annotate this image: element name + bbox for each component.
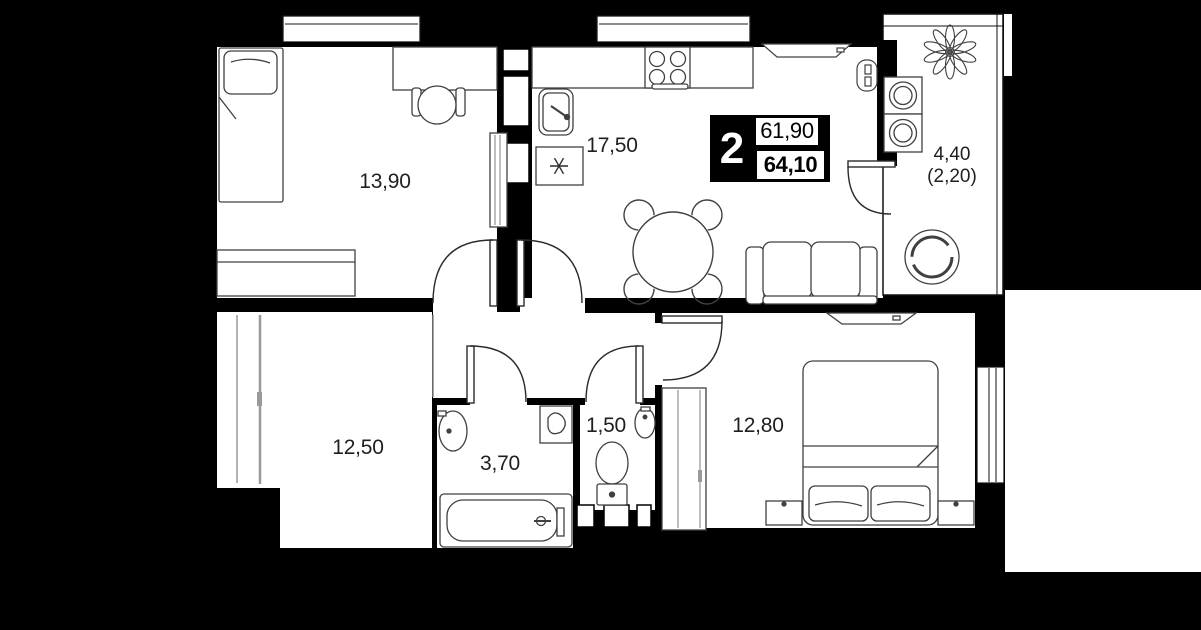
floor-plan-drawing xyxy=(0,0,1201,630)
room-count: 2 xyxy=(710,115,754,182)
mid-wall-left xyxy=(217,298,433,312)
wardrobe-handle xyxy=(257,392,262,406)
label-bedroom-1-area: 13,90 xyxy=(359,170,411,194)
wc-sink-drain xyxy=(643,415,647,419)
bedroom-2-door-leaf xyxy=(662,316,722,323)
balcony-area-value: 4,40 xyxy=(927,144,977,166)
bedroom-2-door-opening xyxy=(655,322,662,385)
wardrobe-handle xyxy=(698,470,702,482)
boiler-slot xyxy=(865,77,871,86)
wc-sink-tap xyxy=(641,407,650,411)
sink-drain xyxy=(447,429,451,433)
sofa-armrest-left xyxy=(746,247,764,304)
toilet-button xyxy=(610,492,615,497)
kitchen-counter xyxy=(532,47,753,88)
balcony-area-secondary: (2,20) xyxy=(927,166,977,188)
burner xyxy=(650,52,665,67)
label-bedroom-2-area: 12,80 xyxy=(732,414,784,438)
label-room-2-area: 12,50 xyxy=(332,436,384,460)
label-wc-area: 1,50 xyxy=(586,414,626,438)
bedroom-2-window xyxy=(977,367,1004,483)
shelf-item xyxy=(548,413,565,434)
label-kitchen-area: 17,50 xyxy=(586,134,638,158)
floor-plan: 13,90 17,50 4,40 (2,20) 12,50 3,70 1,50 … xyxy=(0,0,1201,630)
wc-sink xyxy=(635,408,655,438)
kitchen-door-leaf xyxy=(517,240,524,306)
bedroom-2-door-stub xyxy=(655,305,662,323)
neighbor-slab xyxy=(1005,290,1201,572)
room-2-floor-lower xyxy=(280,488,432,548)
desk xyxy=(393,47,497,90)
washing-machines xyxy=(884,77,922,152)
wc-door-leaf xyxy=(636,346,643,403)
mid-wall-right xyxy=(585,298,662,313)
nightstand-knob xyxy=(954,502,958,506)
bedroom-1-window-bay xyxy=(283,16,420,42)
wardrobe-bedroom-1 xyxy=(490,133,507,227)
bedroom-tv-icon xyxy=(827,313,916,324)
stove-handle xyxy=(652,84,688,89)
desk-chair-armrest-right xyxy=(456,88,465,116)
dresser xyxy=(217,250,355,296)
dining-table xyxy=(633,212,713,292)
total-area-value: 64,10 xyxy=(754,148,827,182)
bedroom-1-door-leaf xyxy=(490,240,497,306)
wc-door-slot xyxy=(585,398,640,406)
bathtub-rail xyxy=(557,508,564,536)
living-area-value: 61,90 xyxy=(754,116,820,147)
desk-chair xyxy=(418,86,456,124)
sofa-seat xyxy=(763,242,812,298)
neighbor-balcony-edge xyxy=(1004,14,1012,76)
burner xyxy=(671,52,686,67)
sofa-back xyxy=(763,296,877,304)
label-bathroom-area: 3,70 xyxy=(480,452,520,476)
balcony-door-leaf xyxy=(848,161,895,167)
sofa-seat xyxy=(811,242,860,298)
pillow xyxy=(871,486,930,521)
burner xyxy=(650,70,665,85)
bathroom-door-slot xyxy=(470,398,527,406)
pillow xyxy=(809,486,868,521)
toilet-bowl xyxy=(596,442,628,484)
apartment-info-badge: 2 61,90 64,10 xyxy=(710,115,830,182)
burner xyxy=(671,70,686,85)
kitchen-sink-basin xyxy=(543,93,569,131)
kitchen-tv xyxy=(762,44,851,57)
tv-notch xyxy=(837,48,844,52)
nightstand-knob xyxy=(782,502,786,506)
pillow xyxy=(224,51,277,94)
boiler xyxy=(857,60,877,91)
badge-areas: 61,90 64,10 xyxy=(754,115,830,182)
sink-tap xyxy=(438,411,446,416)
tv-notch xyxy=(893,316,900,320)
bathroom-door-leaf xyxy=(467,346,474,403)
bathroom-sink xyxy=(439,411,467,451)
room-2-floor xyxy=(217,312,432,488)
kitchen-window-bay xyxy=(597,16,750,42)
label-balcony-area: 4,40 (2,20) xyxy=(927,144,977,188)
boiler-slot xyxy=(865,65,871,74)
